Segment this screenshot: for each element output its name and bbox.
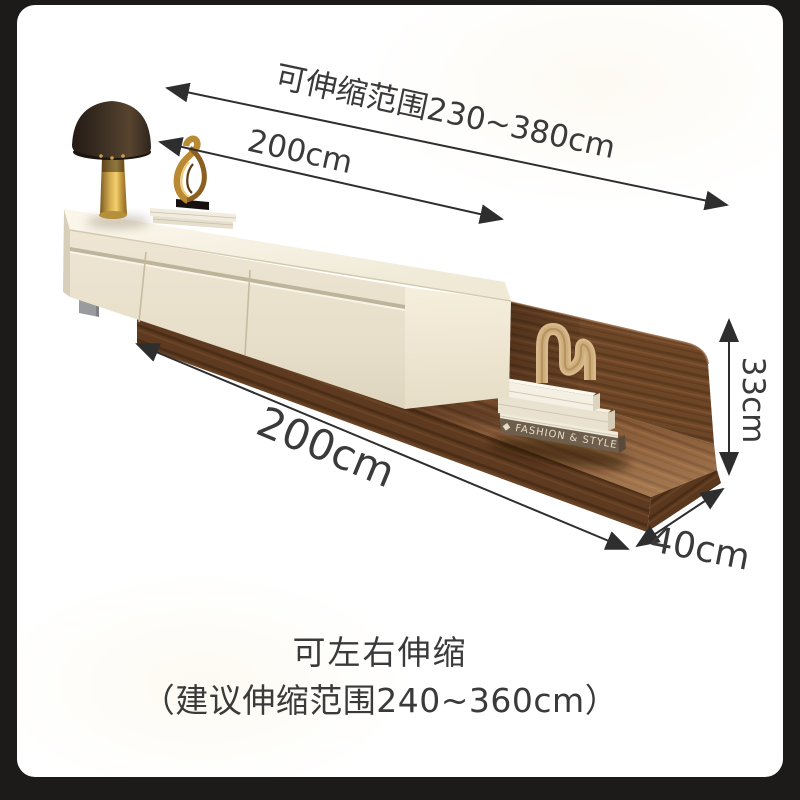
product-image-stage: 可伸缩范围230~380cm 200cm 200cm 40cm 33cm ◆ F…: [0, 0, 800, 800]
caption-block: 可左右伸缩 （建议伸缩范围240~360cm）: [0, 630, 760, 726]
caption-line1: 可左右伸缩: [0, 630, 760, 676]
label-panel-height: 33cm: [735, 357, 771, 444]
caption-line2: （建议伸缩范围240~360cm）: [0, 676, 760, 726]
